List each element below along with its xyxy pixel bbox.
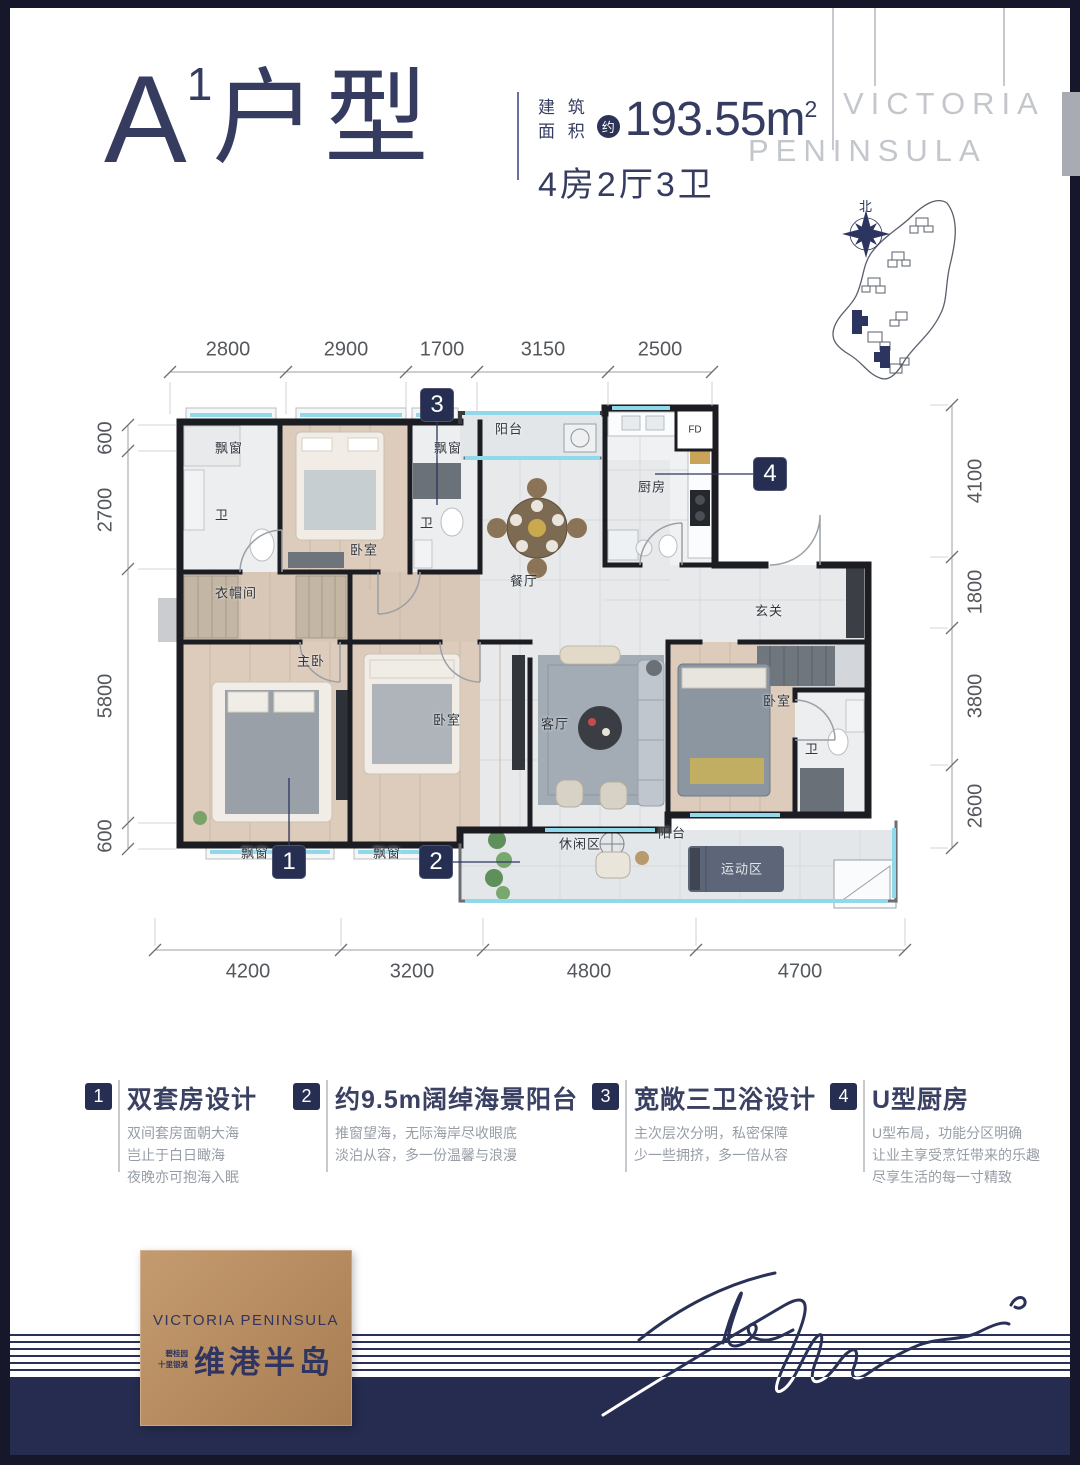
room-label-leisure: 休闲区 — [559, 834, 601, 853]
room-label-balcony: 阳台 — [658, 823, 686, 842]
dim-top: 2800 — [206, 339, 251, 362]
dim-top: 2900 — [324, 339, 369, 362]
unit-suffix: 户型 — [212, 61, 436, 177]
feature-title: U型厨房 — [872, 1080, 969, 1116]
room-label-kitchen: 厨房 — [638, 477, 666, 496]
unit-letter: A — [104, 51, 187, 189]
room-label-bedroom: 卧室 — [350, 540, 378, 559]
feature-number: 3 — [592, 1083, 619, 1110]
room-label-sport: 运动区 — [721, 859, 763, 878]
room-label-balcony: 阳台 — [495, 419, 523, 438]
dim-bottom: 4700 — [778, 961, 823, 984]
feature-number: 4 — [830, 1083, 857, 1110]
watermark-line — [1003, 8, 1005, 86]
approx-badge: 约 — [597, 115, 620, 138]
room-label-bedroom: 卧室 — [763, 691, 791, 710]
room-label-bay-window: 飘窗 — [373, 843, 401, 862]
dim-right: 3800 — [965, 674, 988, 719]
feature-number: 1 — [85, 1083, 112, 1110]
feature-divider — [625, 1080, 627, 1172]
dim-right: 2600 — [965, 784, 988, 829]
dim-top: 3150 — [521, 339, 566, 362]
dim-left: 600 — [95, 819, 118, 852]
dim-bottom: 4200 — [226, 961, 271, 984]
dim-top: 2500 — [638, 339, 683, 362]
room-label-bath: 卫 — [420, 513, 434, 532]
brand-logo-cn: 维港半岛 — [194, 1337, 334, 1382]
dim-left: 600 — [95, 421, 118, 454]
page-title: A1户型 — [104, 58, 436, 182]
brand-logo-small: 碧桂园 十里银滩 — [158, 1349, 188, 1369]
watermark-line — [874, 8, 876, 86]
room-label-dining: 餐厅 — [510, 571, 538, 590]
watermark-victoria: VICTORIA — [843, 86, 1045, 122]
room-label-bath: 卫 — [215, 505, 229, 524]
rooms-summary: 4房2厅3卫 — [538, 157, 816, 206]
room-label-bay-window: 飘窗 — [241, 843, 269, 862]
area-label: 建 筑 面 积 — [538, 96, 589, 144]
room-label-closet: 衣帽间 — [215, 583, 257, 602]
feature-number: 2 — [293, 1083, 320, 1110]
feature-divider — [118, 1080, 120, 1172]
feature-body: U型布局，功能分区明确 让业主享受烹饪带来的乐趣 尽享生活的每一寸精致 — [872, 1122, 1040, 1188]
highlighted-buildings — [852, 310, 890, 368]
dim-left: 2700 — [95, 488, 118, 533]
plan-marker-1: 1 — [272, 845, 306, 879]
right-edge-tab — [1062, 92, 1080, 176]
brand-logo-plate: VICTORIA PENINSULA 碧桂园 十里银滩 维港半岛 — [140, 1250, 352, 1426]
plan-marker-3: 3 — [420, 388, 454, 422]
feature-title: 约9.5m阔绰海景阳台 — [335, 1080, 578, 1116]
feature-body: 双间套房面朝大海 岂止于白日瞰海 夜晚亦可抱海入眠 — [127, 1122, 239, 1188]
unit-superscript: 1 — [187, 58, 213, 110]
area-superscript: 2 — [805, 96, 817, 122]
dim-top: 1700 — [420, 339, 465, 362]
compass-icon — [842, 210, 890, 258]
room-label-living: 客厅 — [541, 714, 569, 733]
room-label-bath: 卫 — [805, 739, 819, 758]
north-label: 北 — [859, 196, 872, 215]
feature-title: 宽敞三卫浴设计 — [634, 1080, 816, 1116]
dim-right: 4100 — [965, 459, 988, 504]
brand-logo-en: VICTORIA PENINSULA — [140, 1312, 352, 1329]
feature-divider — [326, 1080, 328, 1172]
room-label-foyer: 玄关 — [755, 601, 783, 620]
feature-body: 推窗望海，无际海岸尽收眼底 淡泊从容，多一份温馨与浪漫 — [335, 1122, 517, 1166]
plan-marker-4: 4 — [753, 457, 787, 491]
dim-bottom: 3200 — [390, 961, 435, 984]
floorplan-drawing — [0, 0, 1080, 1465]
watermark-line — [832, 8, 834, 150]
area-value: 193.55m2 — [625, 92, 817, 147]
header-divider — [517, 92, 519, 180]
plan-marker-2: 2 — [419, 845, 453, 879]
feature-divider — [863, 1080, 865, 1172]
floorplan-poster: A1户型 建 筑 面 积 约 193.55m2 4房2厅3卫 VICTORIA … — [0, 0, 1080, 1465]
room-label-bedroom: 卧室 — [433, 710, 461, 729]
dim-right: 1800 — [965, 570, 988, 615]
room-label-fd: FD — [688, 425, 701, 436]
feature-title: 双套房设计 — [127, 1080, 257, 1116]
room-label-master: 主卧 — [297, 651, 325, 670]
dim-bottom: 4800 — [567, 961, 612, 984]
feature-body: 主次层次分明，私密保障 少一些拥挤，多一倍从容 — [634, 1122, 788, 1166]
dim-left: 5800 — [95, 674, 118, 719]
room-label-bay-window: 飘窗 — [434, 438, 462, 457]
area-block: 建 筑 面 积 约 193.55m2 4房2厅3卫 — [538, 92, 816, 206]
room-label-bay-window: 飘窗 — [215, 438, 243, 457]
sitemap-drawing — [833, 201, 955, 379]
